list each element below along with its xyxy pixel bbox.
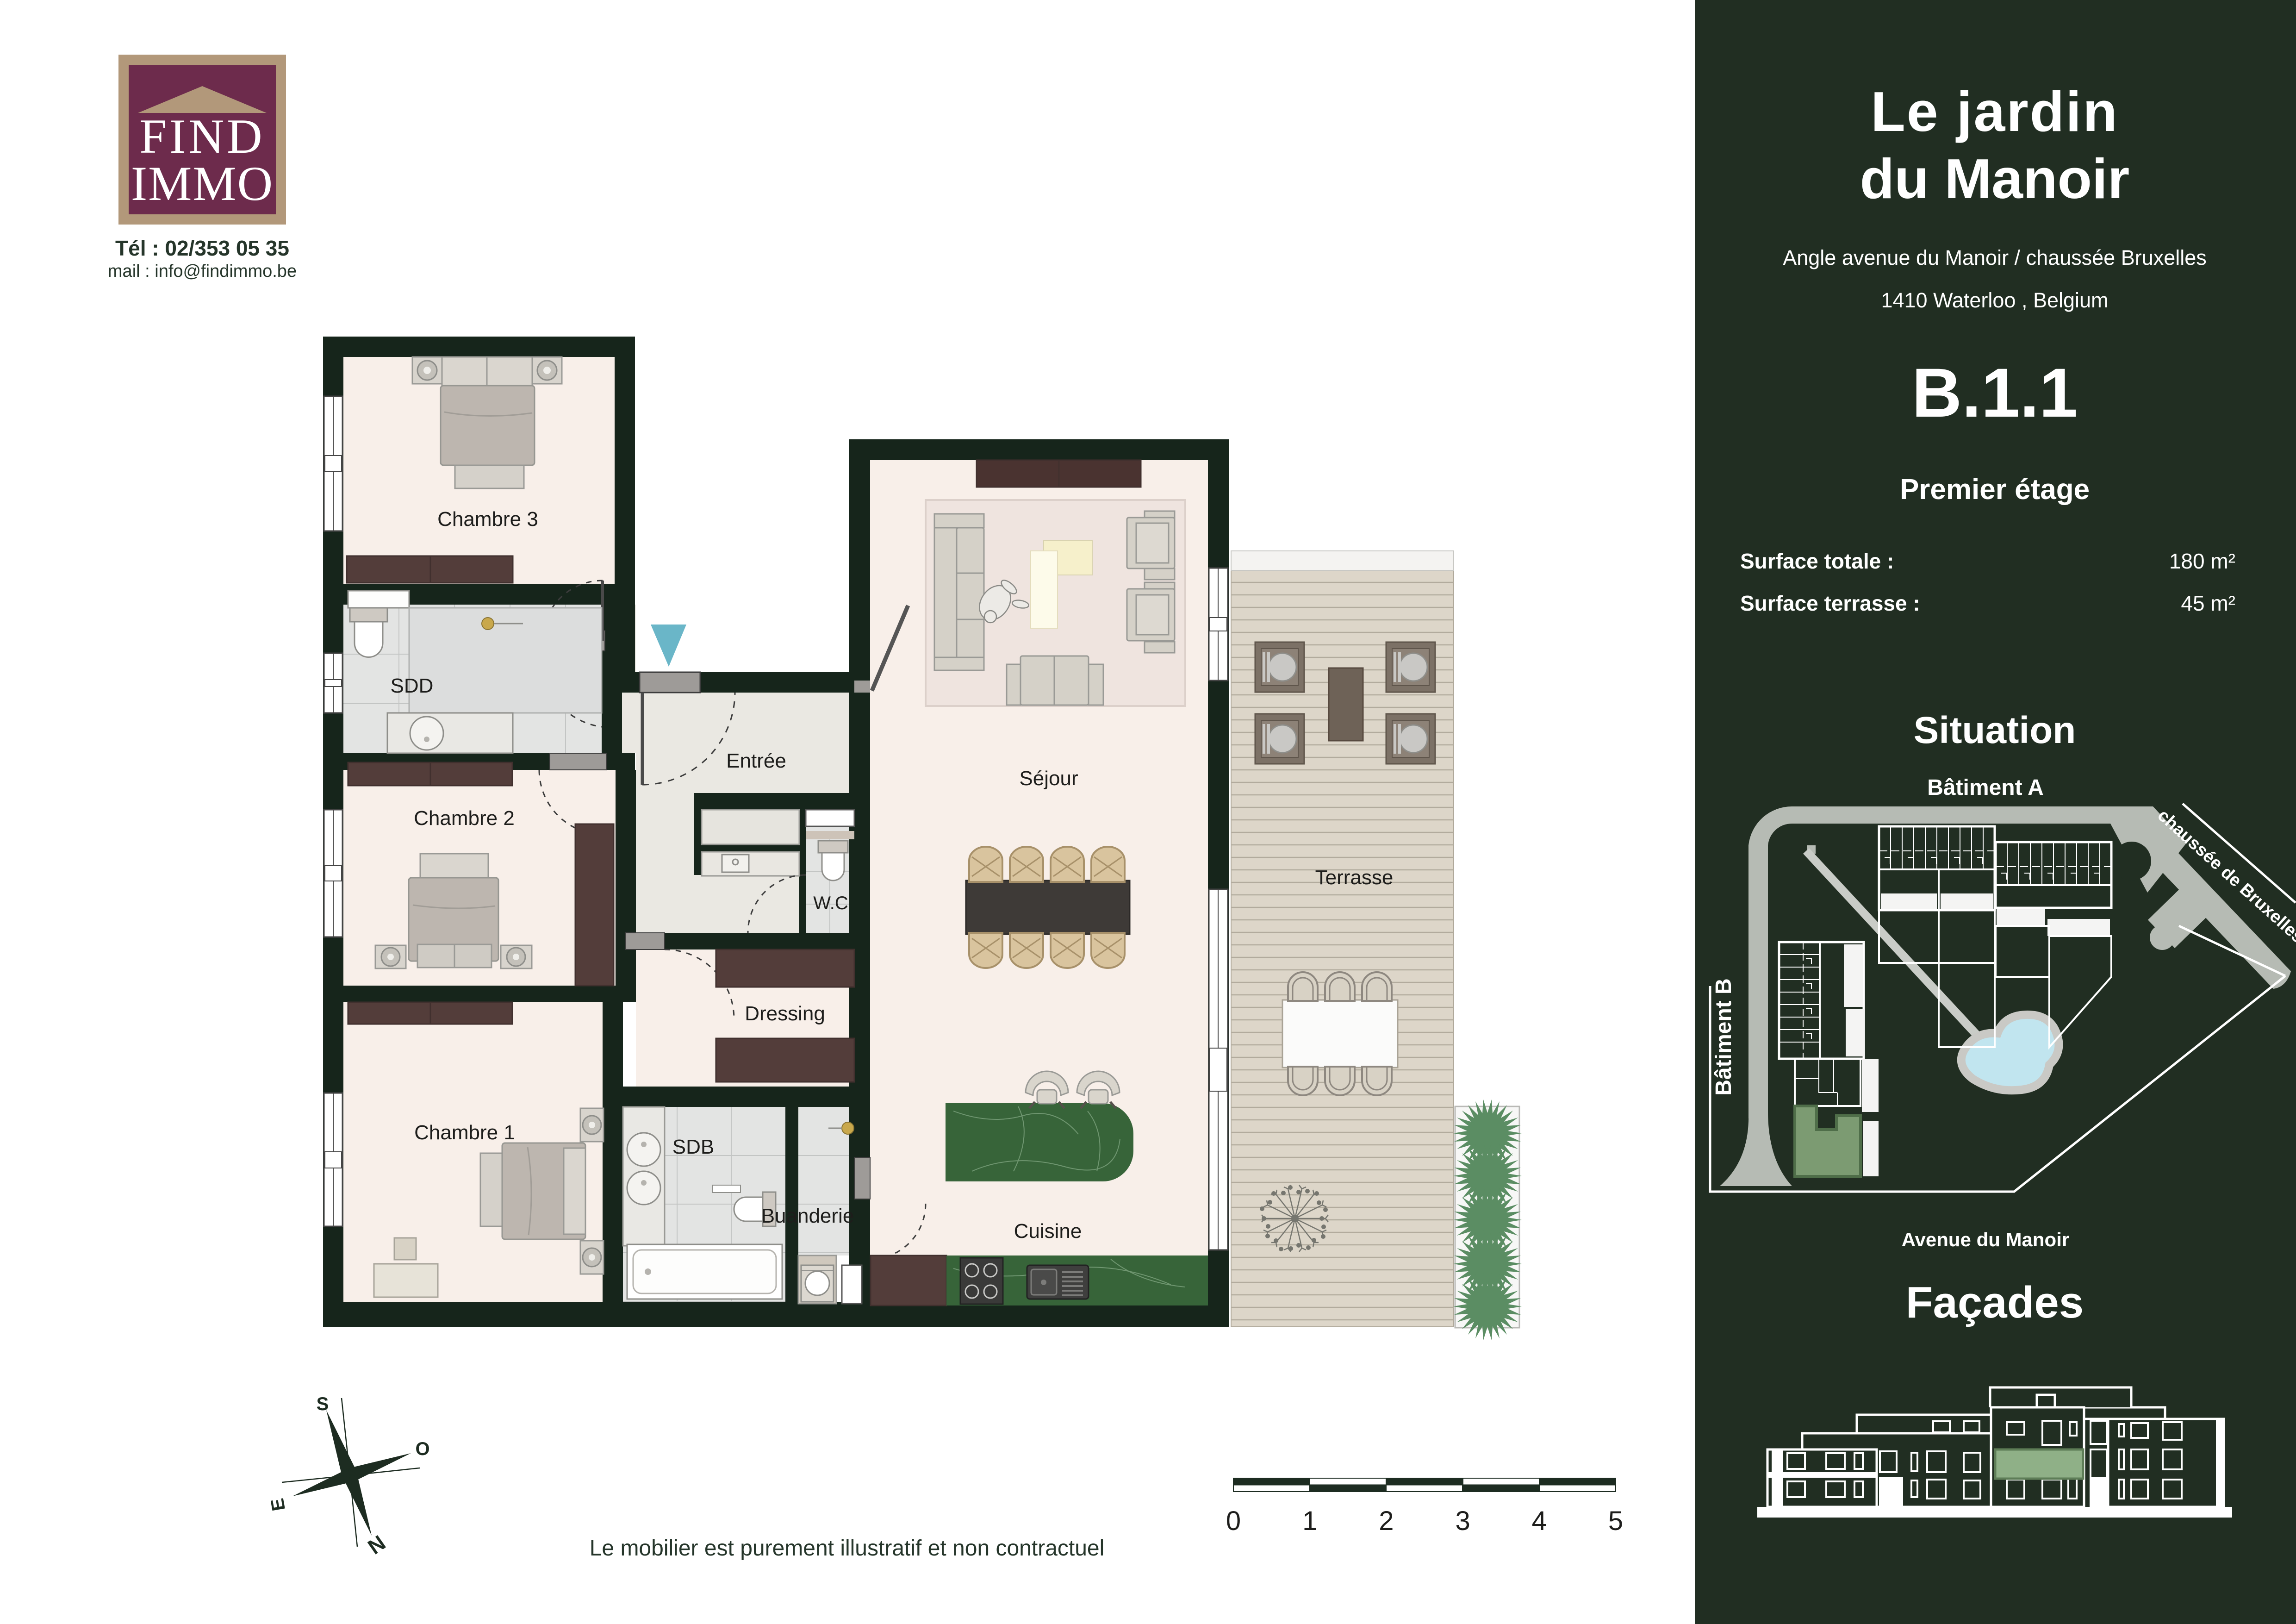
svg-text:Tél : 02/353 05 35: Tél : 02/353 05 35: [115, 236, 289, 260]
svg-text:W.C: W.C: [813, 893, 848, 913]
svg-text:Bâtiment A: Bâtiment A: [1927, 775, 2044, 800]
svg-text:du Manoir: du Manoir: [1860, 147, 2130, 210]
svg-text:3: 3: [1455, 1506, 1470, 1536]
svg-text:Séjour: Séjour: [1019, 767, 1078, 790]
svg-text:SDB: SDB: [672, 1136, 714, 1158]
svg-text:SDD: SDD: [391, 675, 434, 697]
svg-text:Le jardin: Le jardin: [1871, 80, 2118, 143]
svg-text:O: O: [415, 1439, 429, 1459]
svg-text:Dressing: Dressing: [745, 1002, 825, 1025]
svg-text:1410 Waterloo , Belgium: 1410 Waterloo , Belgium: [1881, 288, 2108, 312]
svg-text:mail : info@findimmo.be: mail : info@findimmo.be: [108, 262, 297, 281]
svg-text:Angle avenue du Manoir / chaus: Angle avenue du Manoir / chaussée Bruxel…: [1783, 246, 2207, 269]
svg-text:5: 5: [1608, 1506, 1623, 1536]
svg-text:Avenue du Manoir: Avenue du Manoir: [1902, 1229, 2069, 1250]
svg-text:Le mobilier est purement illus: Le mobilier est purement illustratif et …: [590, 1536, 1105, 1561]
svg-text:B.1.1: B.1.1: [1912, 354, 2078, 431]
svg-text:Premier étage: Premier étage: [1900, 474, 2090, 506]
svg-text:S: S: [317, 1394, 329, 1414]
svg-text:Surface totale :: Surface totale :: [1740, 549, 1894, 573]
svg-text:0: 0: [1226, 1506, 1241, 1536]
svg-text:1: 1: [1302, 1506, 1317, 1536]
svg-text:4: 4: [1532, 1506, 1547, 1536]
svg-text:Surface terrasse :: Surface terrasse :: [1740, 591, 1920, 615]
svg-text:Bâtiment B: Bâtiment B: [1711, 978, 1736, 1095]
svg-text:Cuisine: Cuisine: [1014, 1220, 1082, 1243]
svg-text:IMMO: IMMO: [131, 156, 274, 211]
svg-text:Chambre 1: Chambre 1: [414, 1121, 515, 1144]
svg-text:Chambre 3: Chambre 3: [437, 508, 538, 531]
svg-text:FIND: FIND: [139, 109, 265, 163]
svg-text:Façades: Façades: [1906, 1278, 2084, 1327]
svg-text:45 m²: 45 m²: [2181, 591, 2235, 615]
svg-text:180 m²: 180 m²: [2169, 549, 2235, 573]
svg-text:Chambre 2: Chambre 2: [414, 807, 515, 830]
svg-text:2: 2: [1379, 1506, 1394, 1536]
svg-text:Terrasse: Terrasse: [1315, 866, 1394, 889]
svg-text:Buanderie: Buanderie: [761, 1205, 854, 1227]
svg-text:Situation: Situation: [1914, 709, 2076, 751]
svg-text:Entrée: Entrée: [726, 750, 786, 772]
